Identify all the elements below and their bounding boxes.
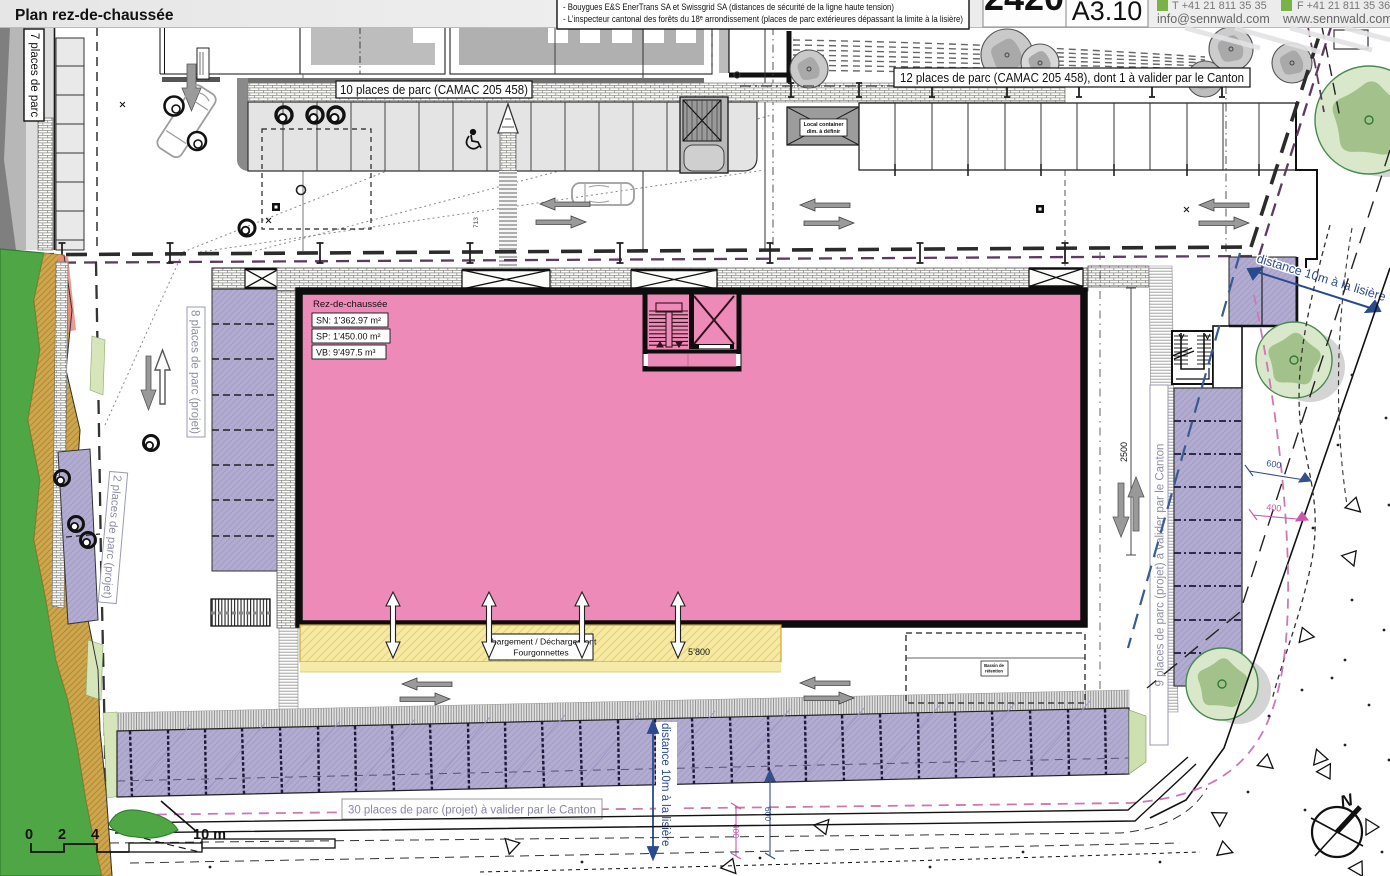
svg-text:10 m: 10 m	[193, 827, 226, 843]
svg-text:8 places de parc (projet): 8 places de parc (projet)	[189, 310, 201, 434]
svg-text:2500: 2500	[1119, 442, 1129, 462]
svg-text:400: 400	[1266, 502, 1282, 514]
svg-text:A3.10: A3.10	[1072, 0, 1143, 26]
svg-text:www.sennwald.com: www.sennwald.com	[1282, 12, 1390, 26]
svg-text:dim. à définir: dim. à définir	[807, 129, 841, 135]
svg-text:info@sennwald.com: info@sennwald.com	[1157, 12, 1270, 26]
svg-text:5’800: 5’800	[688, 647, 710, 657]
svg-text:2: 2	[58, 827, 66, 843]
svg-text:VB: 9’497.5 m³: VB: 9’497.5 m³	[316, 348, 376, 358]
svg-text:F +41 21 811 35 36: F +41 21 811 35 36	[1297, 0, 1390, 12]
svg-text:rétention: rétention	[985, 669, 1003, 674]
svg-text:T +41 21 811 35 35: T +41 21 811 35 35	[1172, 0, 1267, 12]
svg-text:distance 10m à la lisière: distance 10m à la lisière	[659, 723, 671, 846]
svg-text:4: 4	[91, 827, 99, 843]
svg-text:7 places de parc: 7 places de parc	[28, 33, 40, 118]
svg-text:Plan rez-de-chaussée: Plan rez-de-chaussée	[15, 7, 174, 24]
svg-text:- Bouygues E&S EnerTrans SA et: - Bouygues E&S EnerTrans SA et Swissgrid…	[563, 2, 894, 12]
svg-text:30 places de parc (projet) à v: 30 places de parc (projet) à valider par…	[348, 805, 596, 817]
svg-text:SN: 1’362.97 m²: SN: 1’362.97 m²	[316, 316, 381, 326]
svg-text:12 places de parc (CAMAC 205 4: 12 places de parc (CAMAC 205 458), dont …	[900, 70, 1244, 85]
svg-text:Local container: Local container	[804, 122, 845, 128]
svg-text:713: 713	[473, 217, 480, 228]
svg-text:9 places de parc (projet) à va: 9 places de parc (projet) à valider par …	[1155, 444, 1167, 687]
svg-text:SP: 1’450.00 m²: SP: 1’450.00 m²	[316, 332, 381, 342]
svg-text:- L’inspecteur cantonal des fo: - L’inspecteur cantonal des forêts du 18…	[563, 14, 963, 24]
svg-text:Rez-de-chaussée: Rez-de-chaussée	[313, 299, 387, 310]
svg-text:Fourgonnettes: Fourgonnettes	[513, 648, 568, 658]
svg-text:10 places de parc (CAMAC 205 4: 10 places de parc (CAMAC 205 458)	[340, 82, 528, 97]
svg-text:Bassin de: Bassin de	[984, 663, 1004, 668]
svg-text:0: 0	[25, 827, 33, 843]
svg-text:2420: 2420	[984, 0, 1064, 18]
